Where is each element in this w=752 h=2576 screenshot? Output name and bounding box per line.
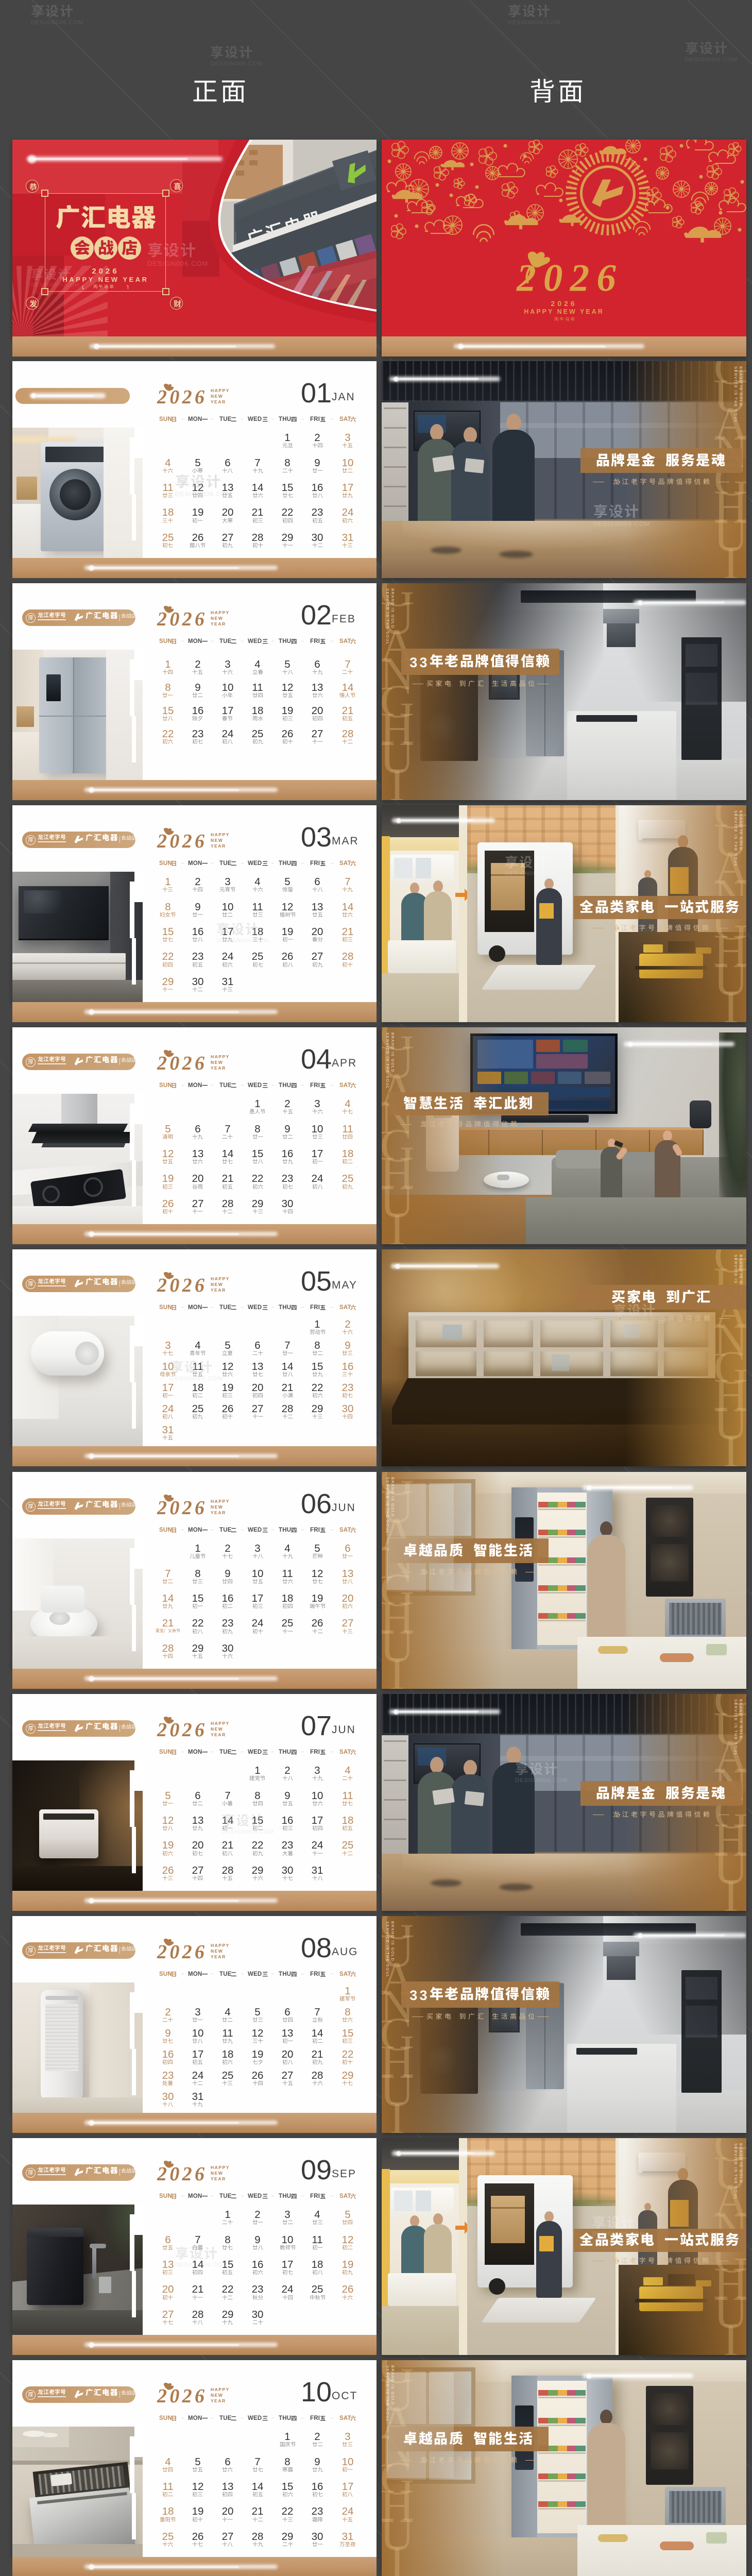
svg-text:2026: 2026 xyxy=(157,1497,204,1519)
svg-text:2026: 2026 xyxy=(157,608,204,630)
svg-text:2026: 2026 xyxy=(157,1719,204,1741)
svg-text:2026: 2026 xyxy=(157,2163,204,2185)
svg-text:2026: 2026 xyxy=(157,1275,204,1296)
svg-text:2026: 2026 xyxy=(157,386,204,408)
svg-text:2026: 2026 xyxy=(516,257,616,299)
svg-text:2026: 2026 xyxy=(157,1941,204,1963)
svg-text:2026: 2026 xyxy=(157,1053,204,1074)
svg-text:2026: 2026 xyxy=(157,831,204,852)
svg-text:2026: 2026 xyxy=(157,2385,204,2407)
